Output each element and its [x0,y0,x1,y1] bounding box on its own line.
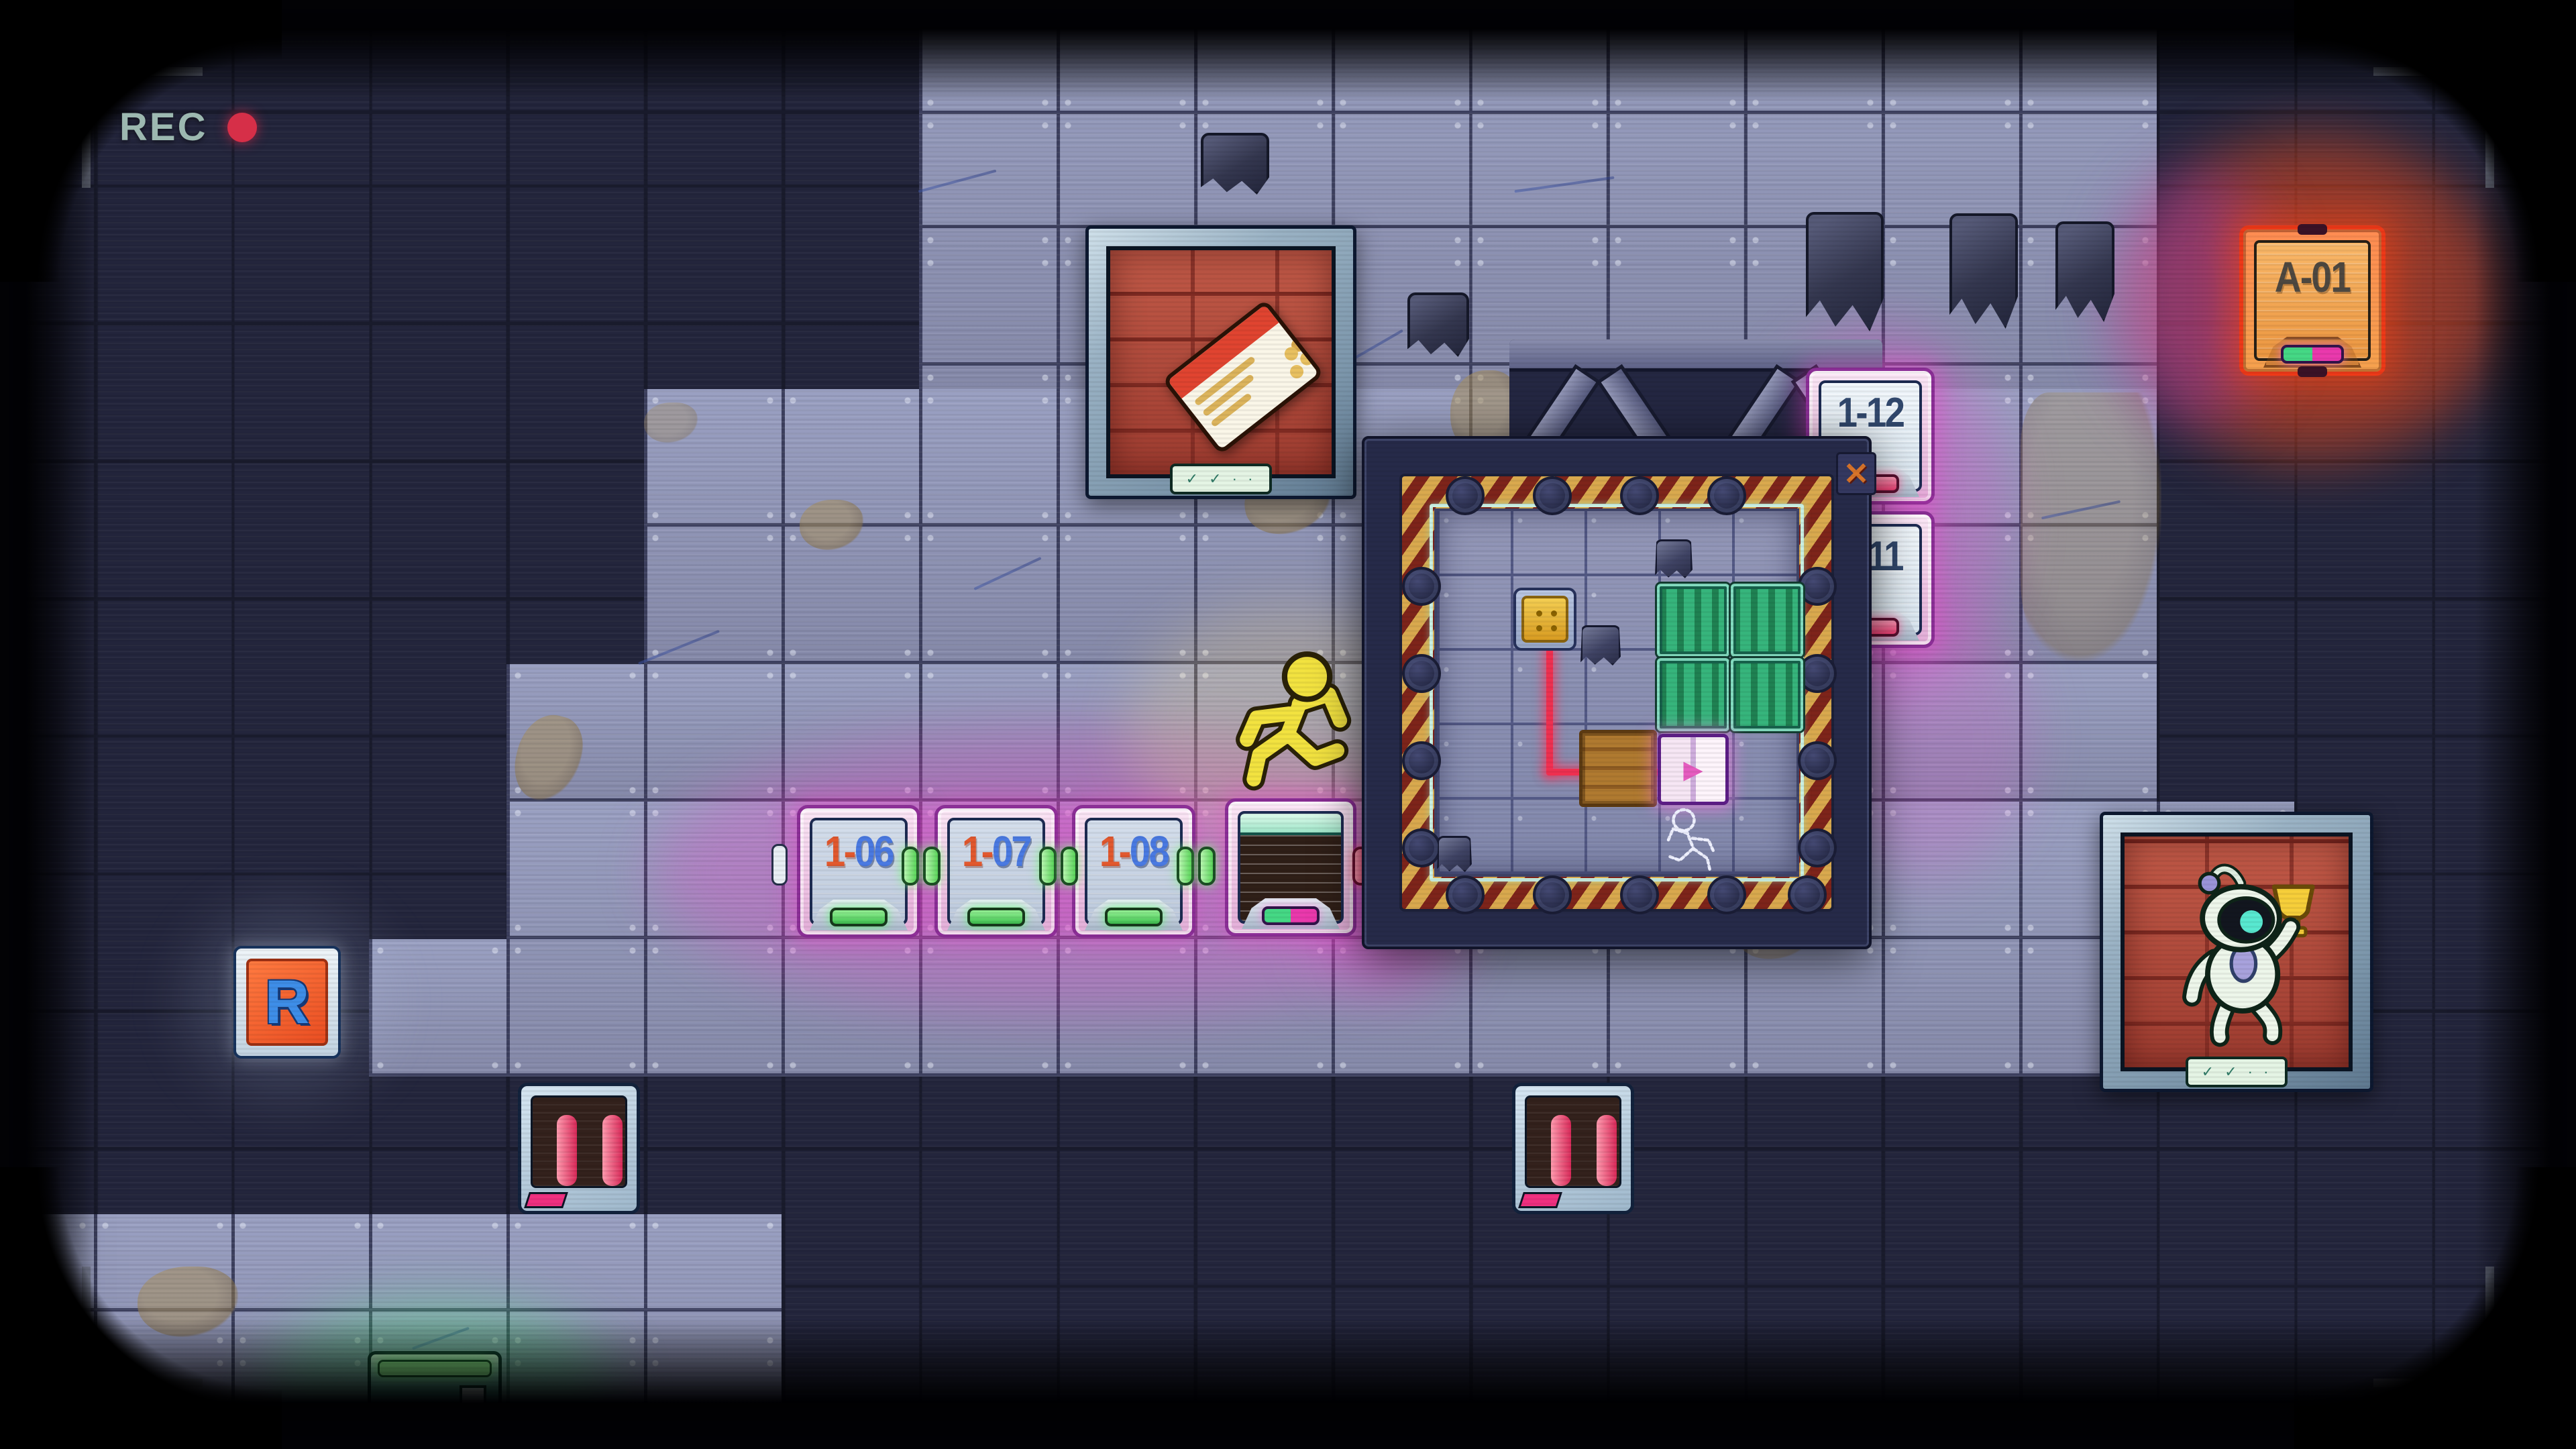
astronaut-art [2151,850,2339,1051]
level-preview-dialog[interactable]: ✕ ▶ [1362,436,1872,949]
gear-icon [1620,875,1659,914]
player-ghost-icon [1660,806,1727,877]
gear-icon [1798,741,1837,780]
level-tile-R[interactable]: R [233,946,341,1059]
tile-door-bar [1240,814,1341,835]
gear-icon [1402,741,1441,780]
crate-wood-icon [1579,730,1657,807]
game-screen: ✓ ✓ · · [0,0,2576,1449]
camera-bracket-tr [2373,67,2494,188]
tile-notch [2298,224,2327,235]
tile-label: 1-06 [807,830,910,873]
painting-plaque: ✓ ✓ · · [1170,464,1272,494]
face-indicator [1518,1192,1562,1208]
gear-icon [1798,654,1837,693]
tile-label: 1-07 [945,830,1047,873]
face-eye [1551,1115,1571,1186]
crate-green-icon [1657,658,1729,731]
crate-green-icon [1657,584,1729,657]
painting-canvas [2121,833,2353,1071]
level-tile-1-06[interactable]: 1-06 [797,805,920,938]
face-screen [1525,1095,1621,1188]
painting-plaque: ✓ ✓ · · [2186,1057,2288,1087]
tile-label: 1-08 [1082,830,1185,873]
gear-icon [1446,875,1485,914]
id-card-painting: ✓ ✓ · · [1085,225,1356,499]
gear-icon [1533,875,1572,914]
tile-button [830,908,888,926]
level-tile-current[interactable] [1225,798,1356,936]
rec-label: REC [119,105,207,150]
level-tile-1-07[interactable]: 1-07 [934,805,1058,938]
camera-bracket-br [2373,1267,2494,1387]
rec-indicator: REC [119,105,257,150]
astronaut-trophy-painting: ✓ ✓ · · [2100,812,2373,1092]
gear-icon [1402,828,1441,867]
face-eye [557,1115,577,1186]
tile-window [460,1385,486,1420]
face-screen [531,1095,627,1188]
level-tile-A-01[interactable]: A-01 [2239,225,2385,376]
gear-icon [1402,654,1441,693]
gear-icon [1402,567,1441,606]
door-exit-icon: ▶ [1658,734,1729,805]
rec-dot-icon [227,113,257,142]
level-tile-green[interactable] [368,1351,502,1445]
face-indicator [524,1192,568,1208]
crate-green-icon [1731,584,1803,657]
gear-icon [1620,476,1659,515]
gear-icon [1798,567,1837,606]
gear-icon [1707,875,1746,914]
crate-green-icon [1731,658,1803,731]
id-card-art [1162,299,1324,455]
gear-icon [1533,476,1572,515]
tile-door-bar [378,1360,492,1377]
face-monitor [1512,1083,1634,1214]
tile-label: A-01 [2253,252,2371,302]
close-button[interactable]: ✕ [1836,452,1876,495]
runner [1220,649,1356,793]
tile-label: R [265,967,309,1038]
face-eye [1597,1115,1617,1186]
camera-bracket-bl [82,1267,203,1387]
tile-notch [2298,366,2327,377]
face-eye [602,1115,623,1186]
wire [1546,648,1553,775]
track-end-cap [771,844,788,885]
face-monitor [518,1083,640,1214]
gear-icon [1798,828,1837,867]
rust-patch [2021,392,2161,661]
gear-icon [1707,476,1746,515]
tile-button [967,908,1025,926]
tile-button [1262,906,1320,925]
gear-icon [1446,476,1485,515]
tile-screen: R [246,959,328,1046]
tile-label: 1-12 [1817,392,1924,434]
tile-button [1105,908,1163,926]
level-tile-1-08[interactable]: 1-08 [1072,805,1195,938]
gear-icon [1788,875,1827,914]
button-yellow-icon [1513,588,1576,651]
map-lit-region [369,939,506,1077]
tile-button [2281,345,2344,364]
close-icon: ✕ [1843,455,1870,492]
painting-canvas [1106,246,1336,478]
